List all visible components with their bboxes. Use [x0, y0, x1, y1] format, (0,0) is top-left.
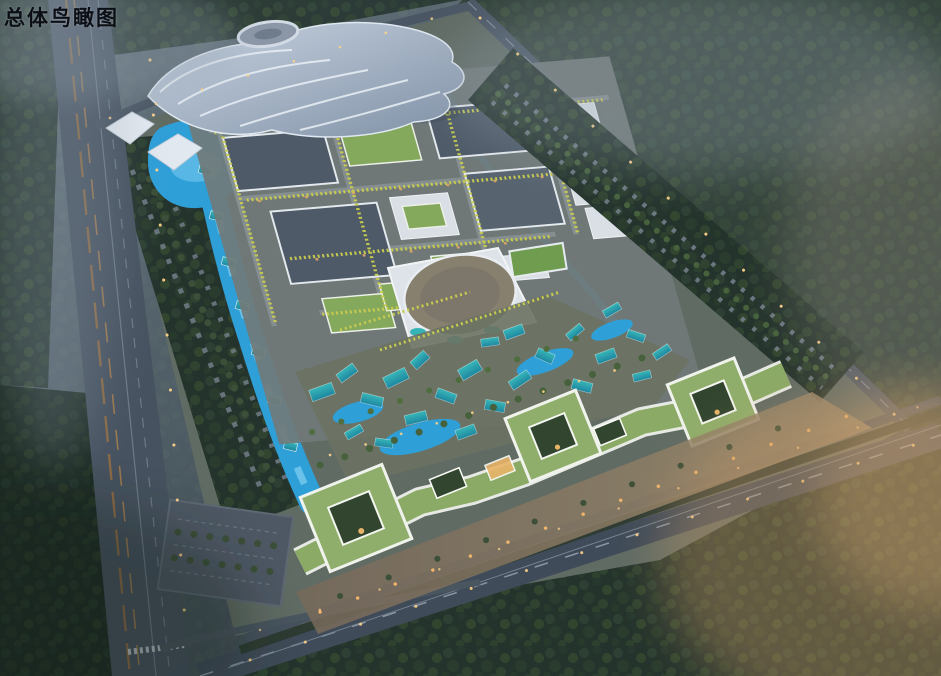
rendering-canvas: 总体鸟瞰图 — [0, 0, 941, 676]
aerial-rendering — [0, 0, 941, 676]
page-title: 总体鸟瞰图 — [4, 2, 119, 32]
